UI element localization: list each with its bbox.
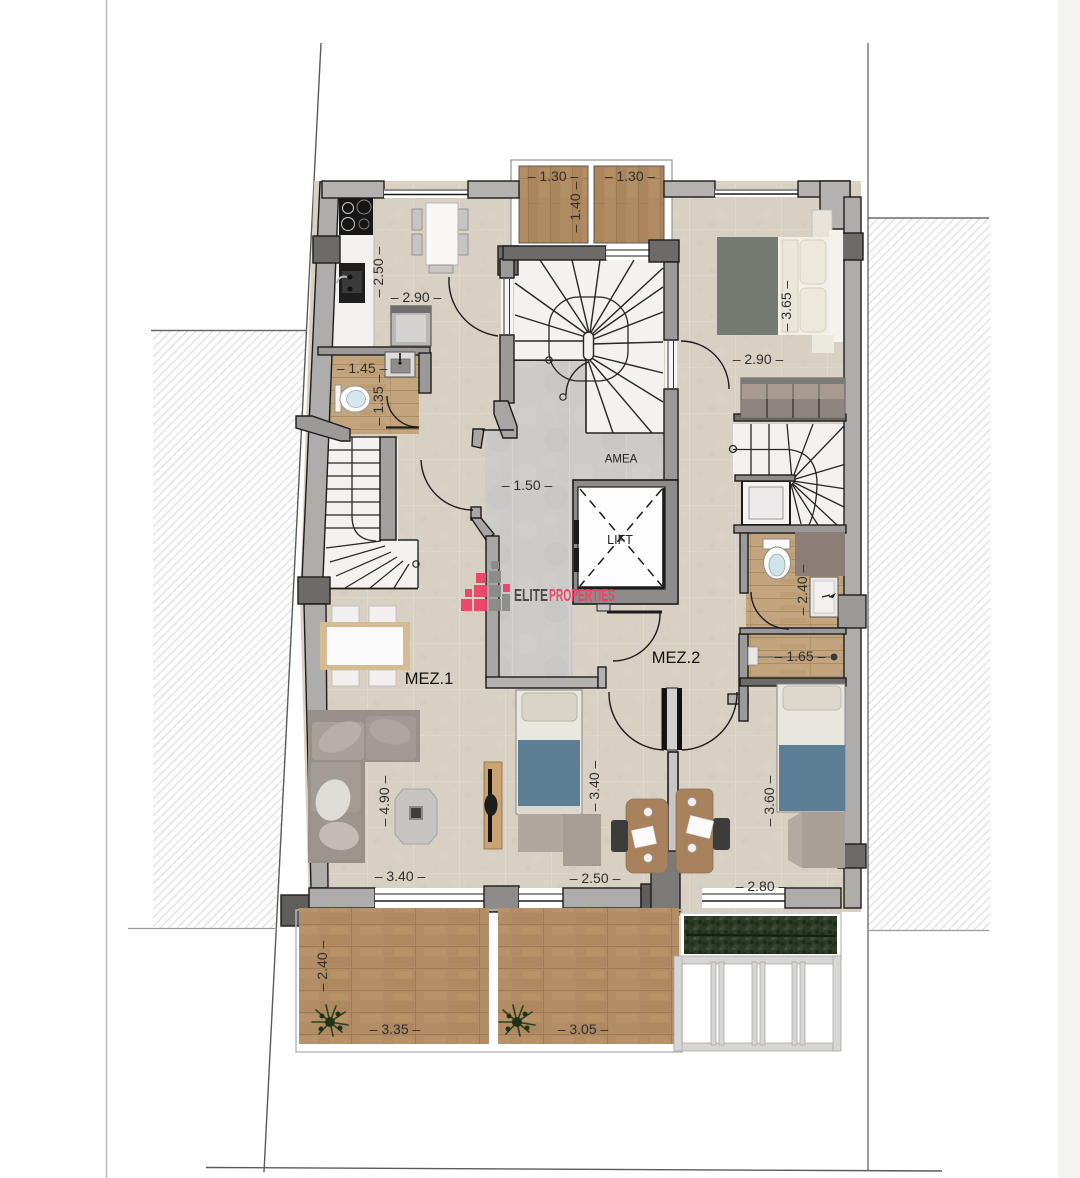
svg-text:– 1.65 –: – 1.65 – [775,648,826,664]
svg-text:– 3.35 –: – 3.35 – [370,1021,421,1037]
svg-text:– 2.40 –: – 2.40 – [794,564,810,615]
svg-text:LIFT: LIFT [607,533,633,547]
svg-text:PROPERTIES: PROPERTIES [549,585,615,605]
svg-text:ELITE: ELITE [514,585,548,605]
svg-text:– 3.40 –: – 3.40 – [586,760,602,811]
svg-text:MEZ.1: MEZ.1 [405,670,454,688]
svg-text:– 4.90 –: – 4.90 – [376,775,392,826]
svg-text:– 2.90 –: – 2.90 – [391,289,442,305]
svg-text:– 2.90 –: – 2.90 – [733,351,784,367]
svg-text:– 2.50 –: – 2.50 – [570,870,621,886]
svg-text:– 3.65 –: – 3.65 – [778,280,794,331]
svg-text:– 1.40 –: – 1.40 – [567,181,583,232]
svg-text:– 2.40 –: – 2.40 – [314,940,330,991]
svg-text:AMEA: AMEA [605,454,638,466]
svg-text:MEZ.2: MEZ.2 [652,649,701,667]
svg-text:– 1.35 –: – 1.35 – [370,374,386,425]
svg-text:– 2.80 –: – 2.80 – [736,878,787,894]
svg-text:– 1.45 –: – 1.45 – [337,360,388,376]
svg-text:– 3.60 –: – 3.60 – [761,775,777,826]
svg-text:– 3.05 –: – 3.05 – [558,1021,609,1037]
svg-text:– 1.30 –: – 1.30 – [605,168,656,184]
svg-text:– 1.50 –: – 1.50 – [502,477,553,493]
svg-text:– 3.40 –: – 3.40 – [375,868,426,884]
svg-text:– 1.30 –: – 1.30 – [528,168,579,184]
svg-text:– 2.50 –: – 2.50 – [370,246,386,297]
